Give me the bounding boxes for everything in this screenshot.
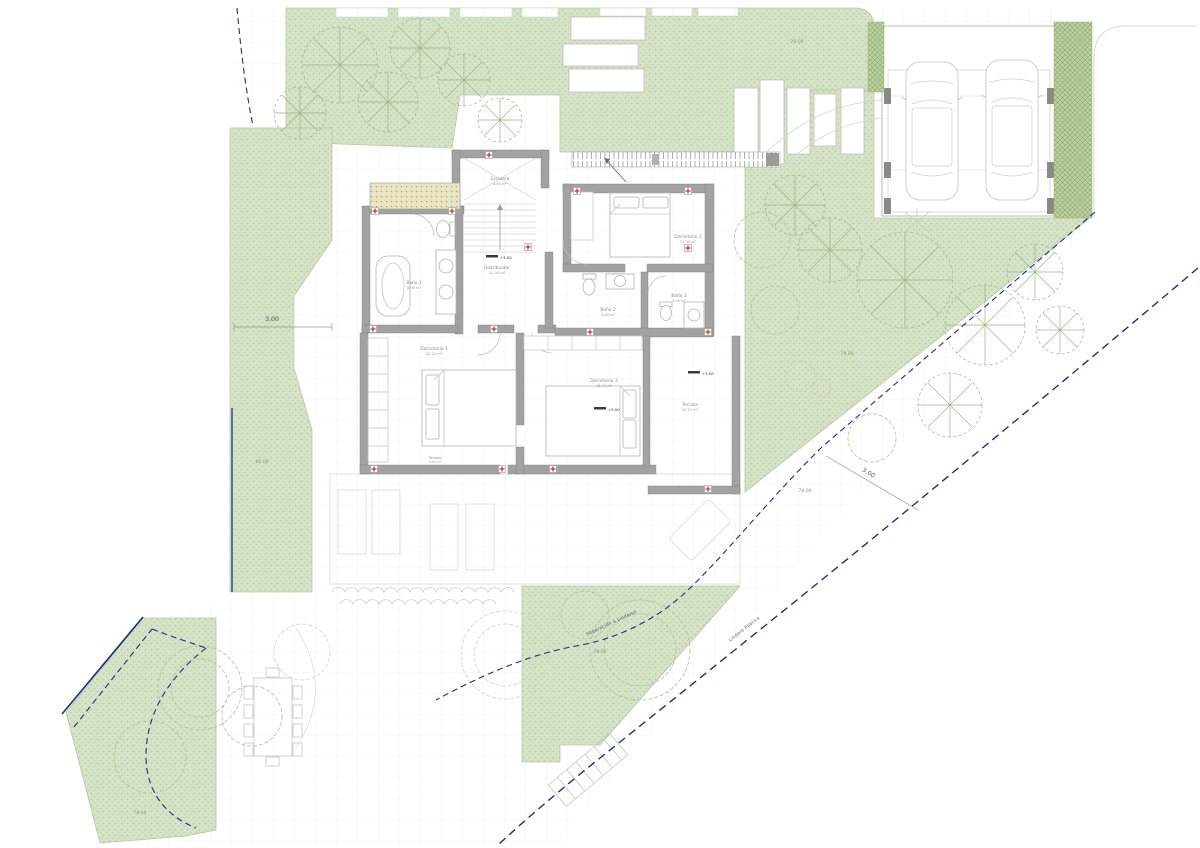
wall-marker-icon [587,329,594,336]
bed-dormitorio3 [546,386,640,456]
green-hatch-strip-right [1054,22,1092,218]
dim-left-offset: 3,00 [265,316,279,323]
bed-dormitorio1 [422,370,516,446]
sink-bath3 [684,302,704,328]
tick-strip-block-small [652,154,659,165]
wardrobe-dormitorio2 [571,192,593,240]
stepping-pads [734,80,864,164]
level-mark-value: +3.00 [608,407,620,412]
car-right [982,60,1042,200]
contour-80: 80.00 [255,459,268,465]
wall-marker-icon [685,188,692,195]
site-plan-drawing: 3,00 3.00 79.00 79.00 78.00 80.00 78.00 … [0,0,1200,848]
car-left [902,62,962,200]
toilet-bath2 [583,274,596,295]
wall-marker-icon [499,466,506,473]
room-terraza-area: 20,10 m² [682,408,699,412]
floor-plan-page: 3,00 3.00 79.00 79.00 78.00 80.00 78.00 … [0,0,1200,848]
tick-strip-block [766,153,779,166]
contour-79-top: 79.00 [790,39,803,45]
room-dormitorio1-area: 20,20 m² [426,352,443,356]
contour-78-right: 78.00 [798,488,811,494]
wall-marker-icon [705,329,712,336]
level-mark-tick [486,255,498,258]
wall-marker-icon [449,208,456,215]
garage [868,22,1198,234]
wall-marker-icon [685,245,692,252]
double-vanity [436,250,456,314]
room-terraza2-area: 5,67 m² [429,460,442,464]
level-mark-tick [594,407,606,410]
contour-78-bottom: 78.00 [133,810,146,816]
room-bano2-area: 5,40 m² [601,313,616,317]
contour-79-right: 79.00 [840,351,853,357]
room-dormitorio3-area: 16,70 m² [596,384,613,388]
entry-tick-strip [572,152,780,167]
wall-marker-icon [486,152,493,159]
contour-78-center: 78.00 [593,649,606,655]
level-mark-value: +3.00 [500,255,512,260]
wall-marker-icon [491,326,498,333]
wall-marker-icon [371,466,378,473]
room-dormitorio2-area: 11,50 m² [680,240,697,244]
step-slabs [563,17,645,92]
level-mark-value: +3.00 [702,371,714,376]
wall-marker-icon [370,326,377,333]
wall-marker-icon [372,208,379,215]
bed-dormitorio2 [610,193,670,257]
green-hatch-strip-left [868,22,884,92]
sink-bath2 [606,274,634,289]
room-escalera-area: 4,80 m² [493,182,508,186]
room-bano1-area: 8,90 m² [407,286,422,290]
bathtub [376,256,410,316]
level-mark-tick [688,371,700,374]
planter-box [370,183,460,209]
wall-marker-icon [550,466,557,473]
wall-marker-icon [574,188,581,195]
toilet-bath3 [660,302,672,321]
wall-marker-icon [525,244,532,251]
wall-marker-icon [705,486,712,493]
closet-dormitorio3 [524,336,642,350]
corner-curb [1094,26,1198,218]
room-distribuidor-area: 11,30 m² [489,271,506,275]
toilet-bath1 [437,221,456,238]
room-bano3-area: 3,90 m² [672,299,687,303]
